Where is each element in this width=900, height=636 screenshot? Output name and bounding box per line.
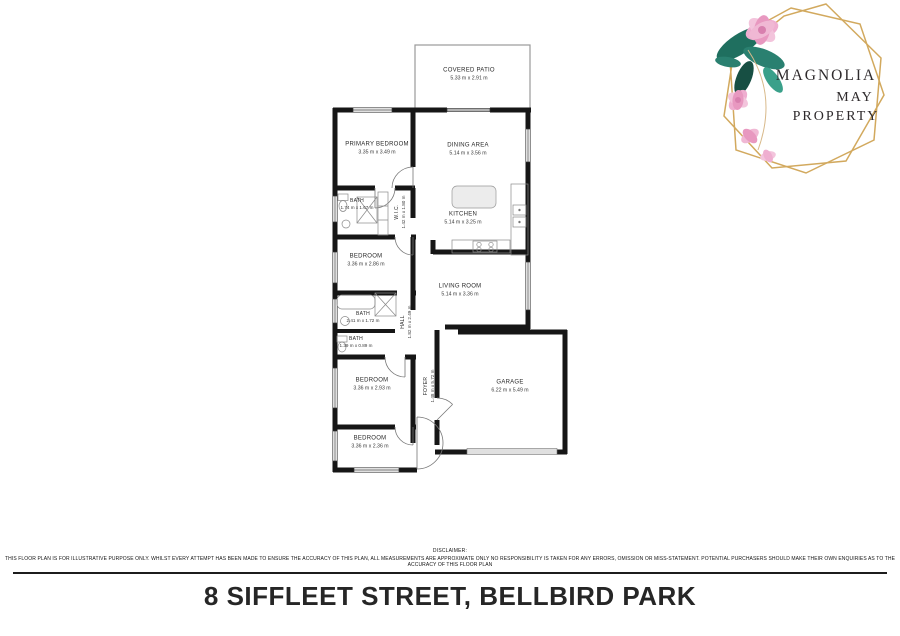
room-label-bath-3: BATH1.39 m x 0.89 m [340,336,373,348]
windows [333,108,530,472]
logo-flowers [725,14,781,164]
disclaimer: DISCLAIMER: THIS FLOOR PLAN IS FOR ILLUS… [0,548,900,568]
agency-logo: MAGNOLIA MAY PROPERTY [688,0,896,178]
floorplan-page: { "logo": { "line1": "MAGNOLIA", "line2"… [0,0,900,636]
garage-door [467,449,557,455]
property-address-title: 8 SIFFLEET STREET, BELLBIRD PARK [0,581,900,612]
disclaimer-heading: DISCLAIMER: [0,548,900,554]
room-label-covered-patio: COVERED PATIO5.33 m x 2.91 m [443,68,495,83]
logo-text-line3: PROPERTY [793,109,880,124]
room-label-dining-area: DINING AREA5.14 m x 3.56 m [447,143,488,158]
room-label-primary-bedroom: PRIMARY BEDROOM3.35 m x 3.49 m [345,142,409,157]
footer-divider [13,572,887,574]
room-label-bedroom-3: BEDROOM3.36 m x 2.93 m [353,378,390,393]
room-label-bedroom-2: BEDROOM3.36 m x 2.86 m [347,254,384,269]
room-label-kitchen: KITCHEN5.14 m x 3.25 m [444,212,481,227]
room-label-garage: GARAGE6.22 m x 5.49 m [491,380,528,395]
room-label-bath-1: BATH1.74 m x 1.67 m [341,198,374,210]
room-label-bath-2: BATH2.41 m x 1.72 m [347,311,380,323]
room-label-foyer: FOYER1.48 m x 5.72 m [423,370,435,403]
room-label-wic: W.I.C.1.42 m x 1.80 m [394,196,406,229]
room-label-bedroom-4: BEDROOM3.36 m x 2.36 m [351,436,388,451]
room-label-hall: HALL1.82 m x 2.49 m [400,306,412,339]
logo-text-line1: MAGNOLIA [776,67,876,84]
disclaimer-text: THIS FLOOR PLAN IS FOR ILLUSTRATIVE PURP… [0,556,900,568]
logo-text-line2: MAY [836,90,873,105]
room-label-living-room: LIVING ROOM5.14 m x 3.36 m [439,284,482,299]
